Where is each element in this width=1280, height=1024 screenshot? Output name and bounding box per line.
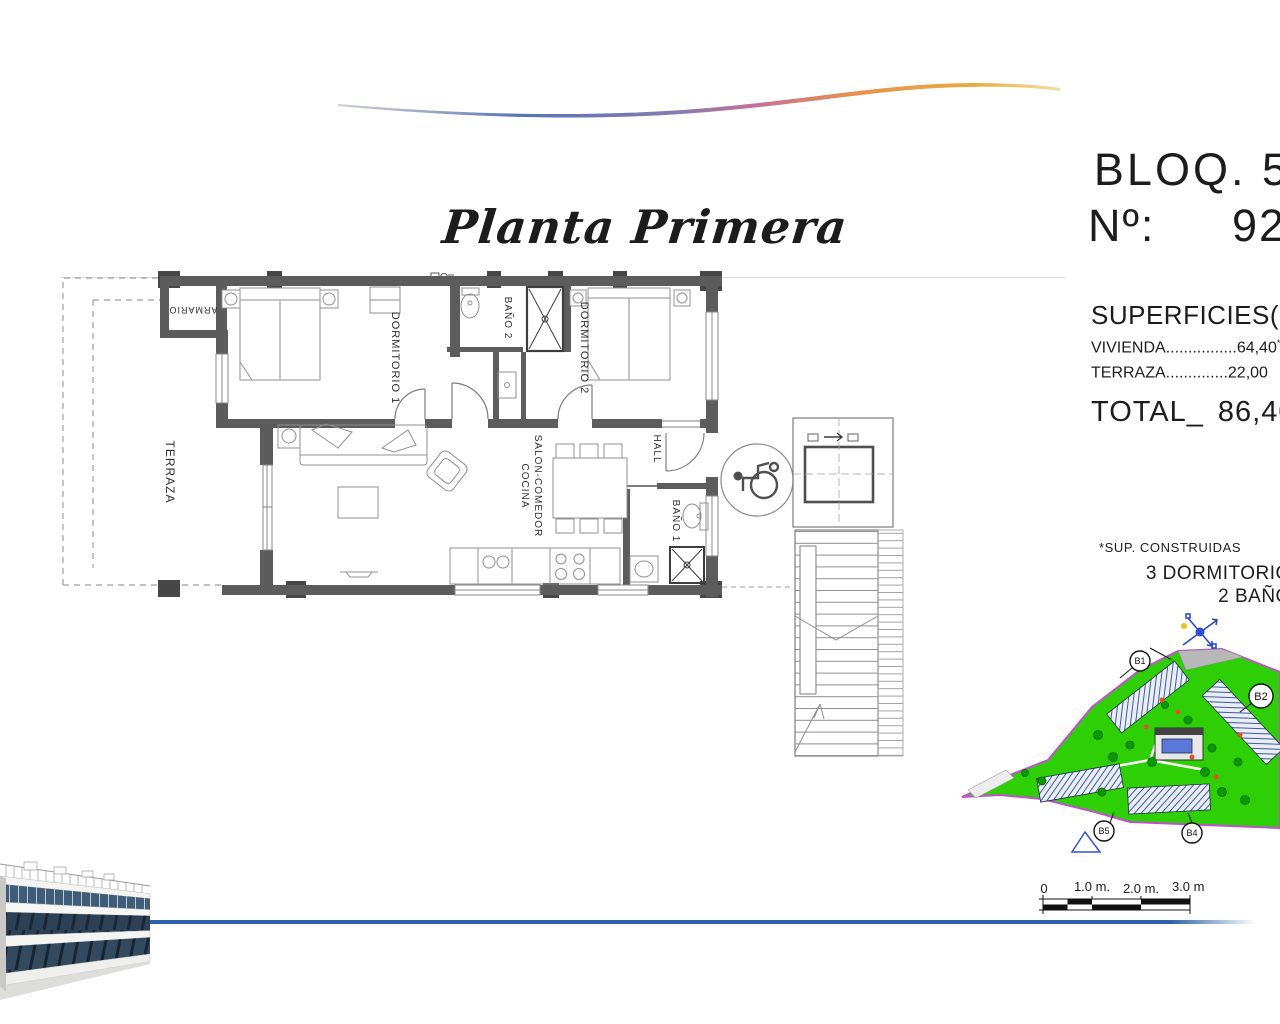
site-plan: B1 B2 B4 B5 — [950, 605, 1280, 865]
site-parcel — [962, 649, 1280, 828]
tv-bench — [340, 572, 378, 577]
gradient-swoosh — [330, 58, 1070, 128]
surfaces-table: VIVIENDA................64,40* TERRAZA..… — [1091, 333, 1280, 384]
room-label-salon-comedor: SALON-COMEDOR — [532, 435, 543, 537]
staircase — [722, 530, 903, 756]
unit-number-value: 92 — [1232, 200, 1280, 252]
kitchen-counter — [450, 548, 620, 584]
terrace-outline — [63, 278, 222, 585]
feature-bedrooms: 3 DORMITORIOS — [1146, 562, 1280, 585]
baseline-rule — [28, 920, 1256, 924]
scale-label-1m: 1.0 m. — [1074, 879, 1110, 894]
total-separator: _ — [1187, 396, 1204, 429]
constructed-surface-footnote: *SUP. CONSTRUIDAS — [1099, 540, 1241, 555]
room-label-terraza: TERRAZA — [163, 440, 177, 503]
floor-plan-title: Planta Primera — [417, 200, 873, 254]
shower-1 — [670, 547, 704, 583]
elevator — [793, 418, 893, 527]
total-row: TOTAL _ 86,40 — [1091, 396, 1273, 429]
scale-label-0: 0 — [1040, 881, 1047, 896]
badge-b2-label: B2 — [1254, 691, 1267, 703]
wheelchair-accessibility-icon — [721, 444, 793, 516]
armchair — [425, 449, 470, 494]
badge-b1-label: B1 — [1134, 656, 1145, 666]
plan-sheet: { "header": { "title": "Planta Primera" … — [0, 0, 1280, 1024]
shower-2 — [527, 287, 563, 351]
room-label-bano-2: BAÑO 2 — [502, 297, 515, 340]
scale-label-3m: 3.0 m. — [1172, 879, 1205, 894]
badge-b4-label: B4 — [1186, 828, 1197, 838]
surface-row-terraza: TERRAZA..............22,00 — [1091, 358, 1280, 383]
sofa — [278, 424, 427, 465]
block-label: BLOQ. 5 — [1094, 144, 1280, 196]
total-value: 86,40 — [1218, 396, 1280, 429]
badge-b5-label: B5 — [1098, 826, 1109, 836]
room-label-dormitorio-2: DORMITORIO 2 — [578, 302, 590, 394]
room-label-dormitorio-1: DORMITORIO 1 — [389, 312, 401, 404]
total-label: TOTAL — [1091, 396, 1187, 429]
scale-label-2m: 2.0 m. — [1123, 881, 1159, 896]
room-label-bano-1: BAÑO 1 — [670, 500, 683, 543]
compass-icon — [1181, 614, 1217, 648]
room-label-cocina: COCINA — [519, 464, 530, 509]
bed-dormitorio-1 — [222, 287, 400, 380]
unit-features: 3 DORMITORIOS 2 BAÑOS — [1146, 562, 1280, 608]
scale-bar: 0 1.0 m. 2.0 m. 3.0 m. — [1030, 878, 1205, 920]
floor-plan: TERRAZA ARMARIO DORMITORIO 1 DORMITORIO … — [50, 255, 920, 775]
scale-bar-segments — [1039, 895, 1190, 914]
room-label-hall: HALL — [651, 434, 662, 463]
room-label-armario: ARMARIO — [168, 305, 217, 315]
unit-number-row: Nº: 92 — [1088, 200, 1280, 252]
unit-number-label: Nº: — [1088, 200, 1155, 252]
coffee-table — [338, 487, 378, 518]
site-pool — [1155, 728, 1203, 760]
surfaces-heading: SUPERFICIES(M2) — [1091, 300, 1280, 331]
building-render — [0, 850, 190, 1024]
surface-row-vivienda: VIVIENDA................64,40* — [1091, 333, 1280, 358]
dining-set — [553, 444, 627, 533]
